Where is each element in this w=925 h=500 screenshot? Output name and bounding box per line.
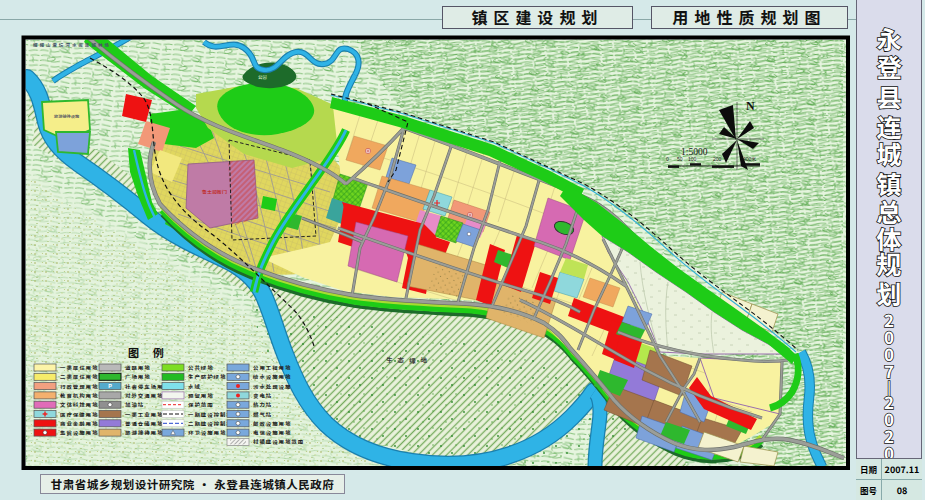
svg-text:划: 划 [876, 275, 901, 311]
